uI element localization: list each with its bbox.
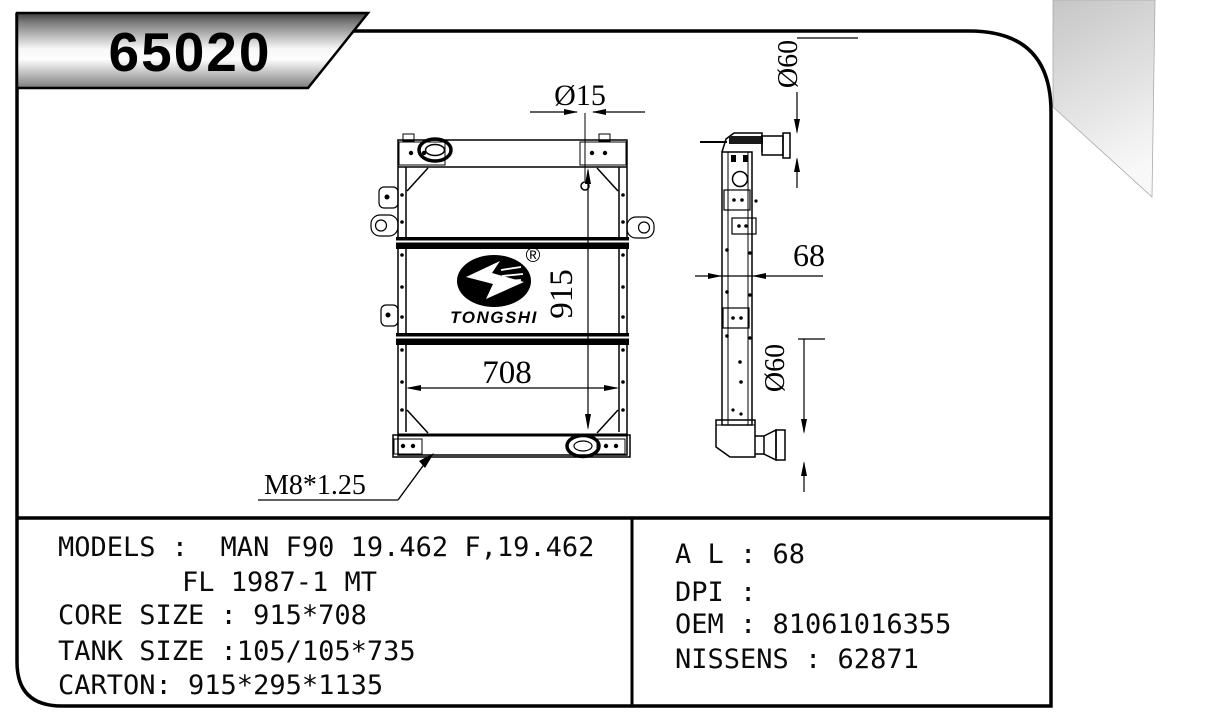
spec-oem: OEM : 81061016355 — [675, 611, 951, 638]
spec-models-line2: FL 1987-1 MT — [182, 569, 377, 596]
dimension-core-width: 708 — [406, 355, 619, 391]
dimension-depth: 68 — [695, 237, 825, 279]
svg-text:Ø15: Ø15 — [554, 79, 606, 112]
spec-al: A L : 68 — [675, 541, 805, 568]
dimension-top-pipe-diameter: Ø60 — [773, 38, 858, 188]
spec-carton: CARTON: 915*295*1135 — [58, 672, 383, 699]
spec-tank-size: TANK SIZE :105/105*735 — [58, 638, 416, 665]
svg-text:68: 68 — [793, 237, 825, 273]
svg-text:Ø60: Ø60 — [760, 344, 791, 392]
drain-plug — [567, 436, 599, 457]
dimension-drain-thread: M8*1.25 — [258, 453, 434, 501]
registered-trademark: ® — [526, 245, 541, 267]
svg-text:M8*1.25: M8*1.25 — [264, 470, 366, 501]
side-mounting-brackets — [371, 187, 654, 326]
bottom-pipe — [755, 430, 785, 460]
corner-fold-decoration — [1053, 0, 1155, 197]
svg-text:Ø60: Ø60 — [773, 40, 804, 88]
dimension-bottom-pipe-diameter: Ø60 — [760, 339, 825, 492]
top-pipe — [762, 133, 790, 158]
spec-core-size: CORE SIZE : 915*708 — [58, 602, 367, 629]
spec-models-line1: MODELS : MAN F90 19.462 F,19.462 — [58, 534, 594, 561]
dimension-core-height: 915 — [544, 168, 591, 430]
tongshi-logo: ® TONGSHI — [450, 245, 540, 327]
spec-nissens: NISSENS : 62871 — [675, 646, 919, 673]
catalog-page: 65020 — [0, 0, 1206, 728]
spec-dpi: DPI : — [675, 579, 756, 606]
bottom-tank — [393, 435, 630, 457]
radiator-side-view — [700, 133, 790, 460]
logo-wordmark: TONGSHI — [450, 308, 538, 327]
part-number: 65020 — [109, 21, 272, 83]
part-number-banner: 65020 — [17, 13, 368, 88]
svg-text:915: 915 — [544, 269, 580, 319]
svg-text:708: 708 — [482, 355, 532, 391]
